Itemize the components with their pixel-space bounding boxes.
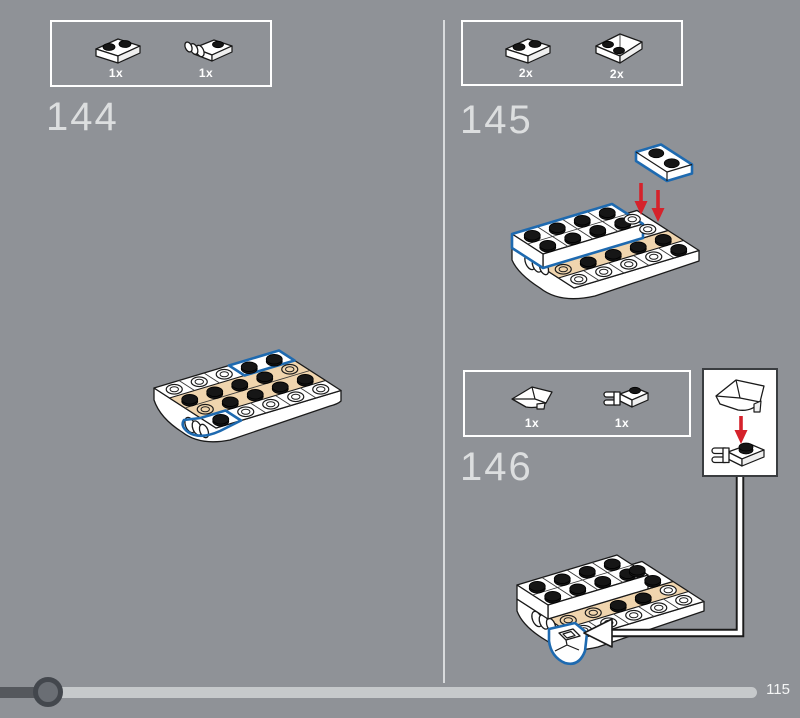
- wedge-slope-icon: [504, 377, 560, 415]
- callout-connector: [556, 468, 796, 648]
- detail-inset-diagram: [704, 370, 776, 475]
- part-cell: 1x: [594, 377, 650, 430]
- part-quantity: 1x: [525, 416, 539, 430]
- page-number: 115: [766, 681, 790, 698]
- part-quantity: 2x: [519, 66, 533, 80]
- part-quantity: 1x: [109, 66, 123, 80]
- progress-slider-knob[interactable]: [33, 677, 63, 707]
- new-plate-1x2: [636, 145, 692, 182]
- progress-track[interactable]: [0, 687, 757, 698]
- part-cell: 1x: [178, 27, 234, 80]
- instruction-page: 1x 1x 144: [0, 0, 800, 718]
- plate-1x2-icon: [88, 27, 144, 65]
- part-cell: 1x: [88, 27, 144, 80]
- plate-1x2-with-barrel-icon: [178, 27, 234, 65]
- plate-1x2-icon: [498, 27, 554, 65]
- step-number-145: 145: [460, 100, 533, 140]
- step-145-diagram: [500, 136, 712, 308]
- step-number-144: 144: [46, 97, 119, 137]
- part-cell: 1x: [504, 377, 560, 430]
- step-144-diagram: [140, 328, 350, 446]
- part-quantity: 2x: [610, 67, 624, 81]
- callout-arrow: [584, 619, 612, 647]
- part-cell: 2x: [498, 27, 554, 80]
- detail-inset-box: [702, 368, 778, 477]
- part-quantity: 1x: [615, 416, 629, 430]
- step-number-146: 146: [460, 447, 533, 487]
- parts-box-step-145: 2x 2x: [461, 20, 683, 86]
- part-quantity: 1x: [199, 66, 213, 80]
- part-cell: 2x: [588, 26, 646, 81]
- column-divider: [443, 20, 445, 683]
- parts-box-step-144: 1x 1x: [50, 20, 272, 87]
- plate-1x1-with-clip-icon: [594, 377, 650, 415]
- parts-box-step-146: 1x 1x: [463, 370, 691, 437]
- wedge-plate-2x2-icon: [588, 26, 646, 66]
